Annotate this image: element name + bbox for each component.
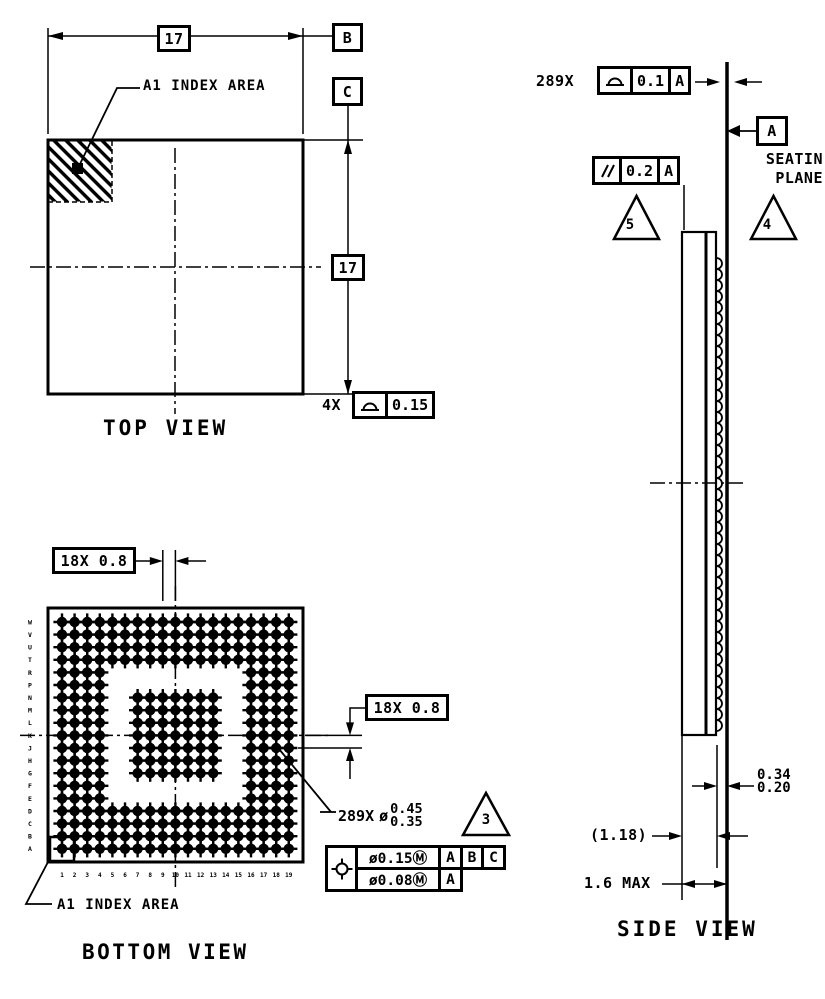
solder-ball [258,705,268,715]
solder-ball [82,667,92,677]
solder-ball [246,743,256,753]
solder-ball [221,629,231,639]
solder-ball [208,768,218,778]
solder-ball [246,705,256,715]
solder-ball [120,629,130,639]
solder-ball [246,844,256,854]
solder-ball [271,755,281,765]
solder-ball [208,642,218,652]
solder-ball [69,806,79,816]
solder-ball [158,768,168,778]
solder-ball [258,655,268,665]
arrowhead [682,880,695,888]
solder-ball [82,692,92,702]
solder-ball [57,642,67,652]
arrowhead [707,78,720,86]
solder-ball [183,844,193,854]
solder-ball [69,755,79,765]
ball-col-label: 14 [222,872,230,879]
solder-ball [208,818,218,828]
solder-ball [208,655,218,665]
solder-ball [246,781,256,791]
solder-ball [158,617,168,627]
solder-ball [271,781,281,791]
solder-ball [158,831,168,841]
parallelism-datum-cell: A [657,159,677,182]
solder-ball [183,718,193,728]
solder-ball [107,806,117,816]
solder-ball [284,743,294,753]
solder-ball [145,629,155,639]
solder-ball [95,617,105,627]
solder-ball [95,768,105,778]
solder-ball [95,667,105,677]
solder-ball [69,642,79,652]
leader [350,708,365,724]
solder-ball [120,844,130,854]
solder-ball [69,667,79,677]
solder-ball [183,768,193,778]
solder-ball [82,755,92,765]
ball-col-label: 18 [273,872,281,879]
datum-a-triangle [727,125,740,137]
ball-col-label: 8 [148,872,152,879]
ball-row-label: E [28,795,32,803]
solder-ball [271,806,281,816]
solder-ball [57,617,67,627]
solder-ball [208,831,218,841]
solder-ball [284,806,294,816]
solder-ball [145,642,155,652]
ball-col-label: 17 [260,872,268,879]
solder-ball [271,718,281,728]
solder-ball [246,818,256,828]
ball-row-label: T [28,656,32,664]
ball-row-label: R [28,669,32,677]
solder-ball [183,617,193,627]
pitch-dim-top: 18X 0.8 [52,547,136,574]
ball-col-label: 4 [98,872,102,879]
solder-ball [82,705,92,715]
solder-ball [57,667,67,677]
ball-row-label: A [28,845,32,853]
position-datum-a2-cell: A [438,867,463,892]
side-balls [717,258,723,731]
solder-ball [195,617,205,627]
solder-ball [271,743,281,753]
solder-ball [233,818,243,828]
ball-col-label: 15 [235,872,243,879]
solder-ball [95,755,105,765]
ball-row-label: L [28,719,32,727]
solder-ball [95,655,105,665]
solder-ball [271,629,281,639]
solder-ball [145,844,155,854]
solder-ball [95,705,105,715]
solder-ball [132,629,142,639]
parallelism-symbol-cell [595,159,619,182]
solder-ball [158,743,168,753]
solder-ball [57,818,67,828]
solder-ball [195,629,205,639]
ball-row-label: G [28,770,32,778]
solder-ball [208,617,218,627]
solder-ball [258,692,268,702]
solder-ball [258,818,268,828]
solder-ball [145,768,155,778]
solder-ball [120,831,130,841]
arrowhead [704,782,717,790]
solder-ball [57,680,67,690]
solder-ball [183,705,193,715]
solder-ball [246,806,256,816]
side-ball-scallops [717,258,723,731]
solder-ball [195,718,205,728]
solder-ball [57,793,67,803]
solder-ball [69,705,79,715]
solder-ball [95,718,105,728]
solder-ball [95,818,105,828]
arrowhead [344,380,352,394]
solder-ball [82,831,92,841]
solder-ball [132,831,142,841]
solder-ball [158,818,168,828]
solder-ball [158,718,168,728]
solder-ball [132,617,142,627]
solder-ball [233,629,243,639]
solder-ball [195,705,205,715]
solder-ball [158,844,168,854]
solder-ball [145,806,155,816]
datum-a-flag-box: A [756,116,788,146]
flatness-frame-top: 0.15 [352,391,435,419]
ball-col-label: 3 [85,872,89,879]
solder-ball [271,730,281,740]
solder-ball [107,642,117,652]
total-height-label: 1.6 MAX [584,876,651,892]
arrowhead [288,32,303,40]
solder-ball [107,831,117,841]
ball-col-label: 16 [247,872,255,879]
flatness-count-label: 4X [322,398,341,414]
solder-ball [183,743,193,753]
solder-ball [246,642,256,652]
solder-ball [284,655,294,665]
solder-ball [57,718,67,728]
ball-row-label: F [28,782,32,790]
solder-ball [107,617,117,627]
arrowhead [150,557,163,565]
solder-ball [69,793,79,803]
solder-ball [57,743,67,753]
solder-ball [57,692,67,702]
solder-ball [284,818,294,828]
solder-ball [258,844,268,854]
solder-ball [258,642,268,652]
solder-ball [69,743,79,753]
solder-ball [132,844,142,854]
solder-ball [258,831,268,841]
solder-ball [57,655,67,665]
ball-col-label: 11 [184,872,192,879]
side-view-title: SIDE VIEW [617,918,758,940]
solder-ball [246,629,256,639]
note-3-number: 3 [478,812,494,828]
solder-ball [271,680,281,690]
solder-ball [221,655,231,665]
a1-leader-dot [72,163,83,174]
ball-col-label: 5 [111,872,115,879]
solder-ball [145,755,155,765]
solder-ball [95,806,105,816]
solder-ball [132,655,142,665]
parallelism-frame: 0.2 A [592,156,680,185]
solder-ball [95,642,105,652]
ball-col-label: 9 [161,872,165,879]
side-view-linework [614,62,796,940]
solder-ball [158,705,168,715]
seating-plane-label: SEATIN PLANE [727,150,823,188]
solder-ball [82,781,92,791]
solder-ball [258,718,268,728]
note-5-number: 5 [622,217,638,233]
solder-ball [208,629,218,639]
bottom-view-title: BOTTOM VIEW [82,941,249,963]
a1-leader-bottom [26,862,52,904]
solder-ball [145,743,155,753]
datum-c-flag: C [332,77,363,106]
solder-ball [284,667,294,677]
solder-ball [258,629,268,639]
solder-ball [120,818,130,828]
a1-index-label-bottom: A1 INDEX AREA [57,898,180,913]
solder-ball [284,844,294,854]
ball-row-label: C [28,820,32,828]
ball-row-label: V [28,631,32,639]
solder-ball [95,793,105,803]
solder-ball [82,655,92,665]
solder-ball [195,818,205,828]
ball-row-label: N [28,694,32,702]
solder-ball [208,743,218,753]
solder-ball [246,831,256,841]
solder-ball [271,831,281,841]
coplanarity-value-cell: 0.1 [630,69,668,92]
top-view-title: TOP VIEW [103,417,228,439]
coplanarity-frame-side: 0.1 A [597,66,691,95]
solder-ball [158,629,168,639]
solder-ball [95,680,105,690]
a1-index-label-top: A1 INDEX AREA [143,79,266,94]
position-tol2-cell: ø0.08Ⓜ [355,867,441,892]
solder-ball [258,781,268,791]
solder-ball [221,818,231,828]
solder-ball [82,844,92,854]
solder-ball [120,617,130,627]
ball-row-label: H [28,757,32,765]
solder-ball [195,755,205,765]
solder-ball [82,718,92,728]
solder-ball [271,692,281,702]
solder-ball [221,617,231,627]
solder-ball [132,718,142,728]
solder-ball [183,655,193,665]
ball-col-label: 1 [60,872,64,879]
solder-ball [95,781,105,791]
solder-ball [132,806,142,816]
solder-ball [271,617,281,627]
solder-ball [195,655,205,665]
ball-row-label: B [28,833,32,841]
solder-ball [195,642,205,652]
solder-ball [208,718,218,728]
arrowhead [734,78,747,86]
solder-ball [95,844,105,854]
arrowhead [344,140,352,154]
solder-ball [132,755,142,765]
solder-ball [208,692,218,702]
solder-ball [246,755,256,765]
arrowhead [714,880,727,888]
solder-ball [107,818,117,828]
solder-ball [82,617,92,627]
solder-ball [271,667,281,677]
ball-row-label: J [28,744,32,752]
solder-ball [145,818,155,828]
solder-ball [258,755,268,765]
coplanarity-datum-cell: A [668,69,688,92]
solder-ball [233,844,243,854]
solder-ball [69,818,79,828]
solder-ball [246,793,256,803]
solder-ball [208,755,218,765]
solder-ball [57,768,67,778]
ball-height-dim: 0.34 0.20 [757,769,791,795]
solder-ball [284,629,294,639]
solder-ball [221,642,231,652]
solder-ball [57,629,67,639]
arrowhead [669,832,682,840]
solder-ball [183,818,193,828]
solder-ball [246,718,256,728]
solder-ball [271,844,281,854]
solder-ball [107,629,117,639]
solder-ball [284,692,294,702]
ball-row-label: M [28,707,32,715]
solder-ball [258,617,268,627]
solder-ball [195,831,205,841]
solder-ball [183,831,193,841]
solder-ball [284,781,294,791]
solder-ball [183,629,193,639]
arrowhead [175,557,188,565]
solder-ball [69,692,79,702]
solder-ball [183,755,193,765]
solder-ball [183,642,193,652]
solder-ball [82,818,92,828]
solder-ball [82,768,92,778]
pitch-dim-right: 18X 0.8 [365,694,449,721]
ball-col-label: 2 [73,872,77,879]
solder-ball [57,844,67,854]
solder-ball [107,655,117,665]
seating-plane-icon [359,399,381,412]
mechanical-drawing: WVUTRPNMLKJHGFEDCBA123456789101112131415… [0,0,825,999]
solder-ball [120,642,130,652]
solder-ball [246,655,256,665]
solder-ball [195,768,205,778]
solder-ball [132,705,142,715]
solder-ball [271,818,281,828]
solder-ball [284,718,294,728]
solder-ball [145,655,155,665]
solder-ball [132,818,142,828]
solder-ball [132,692,142,702]
solder-ball [82,680,92,690]
seating-plane-line2: PLANE [775,169,823,188]
solder-ball [233,831,243,841]
ball-diameter-min: 0.35 [390,816,423,829]
solder-ball [95,629,105,639]
solder-ball [158,642,168,652]
ball-row-label: W [28,618,32,626]
ball-col-label: 12 [197,872,205,879]
ball-count-label: 289X [338,807,374,825]
note-4-number: 4 [759,217,775,233]
solder-ball [195,743,205,753]
solder-ball [271,768,281,778]
seating-plane-symbol-cell [600,69,630,92]
solder-ball [284,768,294,778]
ball-col-label: 6 [123,872,127,879]
solder-ball [158,806,168,816]
solder-ball [69,781,79,791]
solder-ball [95,831,105,841]
parallelism-value-cell: 0.2 [619,159,657,182]
seating-plane-symbol-cell [355,394,385,416]
ball-col-label: 7 [136,872,140,879]
solder-ball [246,617,256,627]
arrowhead [717,832,730,840]
solder-ball [284,617,294,627]
solder-ball [284,831,294,841]
solder-ball [271,705,281,715]
side-coplanarity-count: 289X [536,74,574,90]
solder-ball [120,655,130,665]
flatness-value-cell: 0.15 [385,394,432,416]
solder-ball [221,844,231,854]
solder-ball [145,705,155,715]
ball-col-label: 13 [210,872,218,879]
arrowhead [48,32,63,40]
solder-ball [69,718,79,728]
solder-ball [271,642,281,652]
solder-ball [183,692,193,702]
solder-ball [158,755,168,765]
solder-ball [258,768,268,778]
solder-ball [208,806,218,816]
solder-ball [195,844,205,854]
ball-row-label: U [28,644,32,652]
solder-ball [69,617,79,627]
solder-ball [57,755,67,765]
solder-ball [95,743,105,753]
ball-col-label: 19 [285,872,293,879]
solder-ball [82,629,92,639]
solder-ball [107,844,117,854]
position-icon [330,857,354,881]
solder-ball [132,768,142,778]
